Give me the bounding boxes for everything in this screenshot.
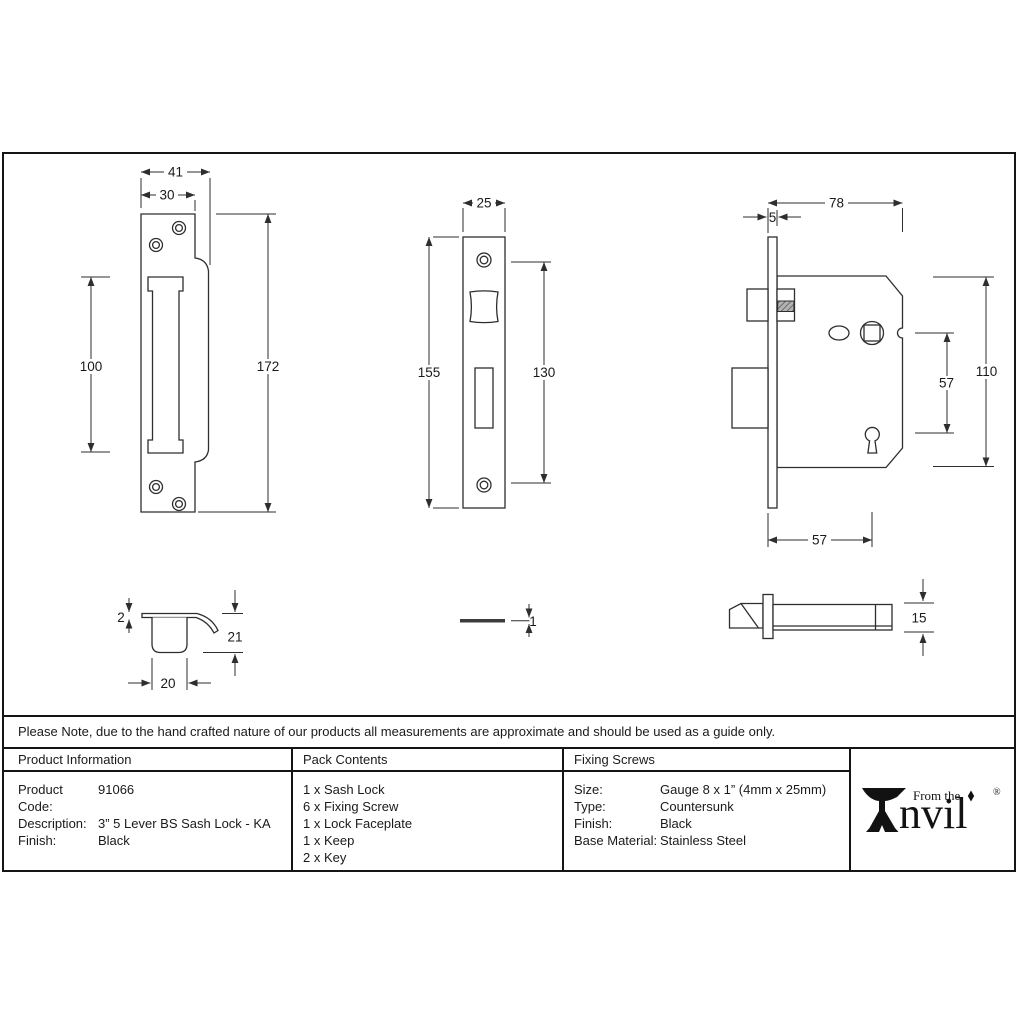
- dim-lock-spindle-to-keyhole: 57: [939, 376, 954, 391]
- screw-finish-label: Finish:: [574, 815, 660, 832]
- pack-item: 1 x Keep: [303, 832, 556, 849]
- latch-spring-hatch: [778, 301, 794, 312]
- dim-keep-width-outer: 41: [168, 165, 183, 180]
- latch-bolt: [747, 289, 768, 321]
- lock-side-drawing: 15: [730, 579, 935, 656]
- finish-label: Finish:: [18, 832, 98, 849]
- note-text: Please Note, due to the hand crafted nat…: [18, 724, 775, 739]
- table-row: Description: 3” 5 Lever BS Sash Lock - K…: [18, 815, 285, 832]
- table-row: Type: Countersunk: [574, 798, 843, 815]
- dim-faceplate-total-height: 155: [418, 365, 441, 380]
- table-row: Finish: Black: [574, 815, 843, 832]
- lock-case-outline: [777, 276, 903, 468]
- dim-keep-slot-height: 100: [80, 359, 103, 374]
- dim-keep-width-plate: 30: [159, 188, 174, 203]
- dim-faceplate-screw-span: 130: [533, 365, 556, 380]
- diamond-icon: [967, 791, 973, 802]
- keep-side-box: [152, 618, 187, 653]
- faceplate-outline: [463, 237, 505, 508]
- keep-side-drawing: 2 21 20: [117, 590, 243, 691]
- from-the-anvil-logo: From the nvil ®: [862, 783, 1004, 836]
- dim-keep-depth: 21: [227, 630, 242, 645]
- screw-material-value: Stainless Steel: [660, 832, 746, 849]
- product-information-body: Product Code: 91066 Description: 3” 5 Le…: [4, 772, 291, 870]
- screw-material-label: Base Material:: [574, 832, 660, 849]
- table-row: Size: Gauge 8 x 1” (4mm x 25mm): [574, 781, 843, 798]
- screw-size-value: Gauge 8 x 1” (4mm x 25mm): [660, 781, 826, 798]
- measurements-note: Please Note, due to the hand crafted nat…: [4, 715, 1014, 747]
- dim-keep-box-width: 20: [160, 676, 175, 691]
- dim-faceplate-thickness: 1: [529, 614, 537, 629]
- pack-item: 2 x Key: [303, 849, 556, 866]
- fixing-screws-column: Fixing Screws Size: Gauge 8 x 1” (4mm x …: [564, 749, 851, 870]
- registered-mark: ®: [993, 787, 1001, 798]
- faceplate-side-drawing: 1: [460, 604, 537, 637]
- dim-lock-backset: 57: [812, 533, 827, 548]
- screw-type-label: Type:: [574, 798, 660, 815]
- description-label: Description:: [18, 815, 98, 832]
- dim-lock-case-height: 110: [976, 364, 998, 379]
- screw-size-label: Size:: [574, 781, 660, 798]
- faceplate-side-bar: [460, 619, 505, 623]
- product-code-value: 91066: [98, 781, 134, 815]
- brand-name: nvil: [899, 789, 967, 836]
- product-code-label: Product Code:: [18, 781, 98, 815]
- product-information-column: Product Information Product Code: 91066 …: [4, 749, 293, 870]
- table-row: Base Material: Stainless Steel: [574, 832, 843, 849]
- product-spec-table: Product Information Product Code: 91066 …: [4, 747, 1014, 870]
- screw-finish-value: Black: [660, 815, 692, 832]
- dim-lock-case-depth: 15: [911, 611, 926, 626]
- table-row: Product Code: 91066: [18, 781, 285, 815]
- pack-contents-body: 1 x Sash Lock 6 x Fixing Screw 1 x Lock …: [293, 772, 562, 870]
- lock-side-faceplate: [763, 595, 773, 639]
- dim-keep-plate-thickness: 2: [117, 610, 125, 625]
- deadbolt: [732, 368, 768, 428]
- lock-body-drawing: 78 5 110 57: [732, 196, 1001, 548]
- fixing-screws-body: Size: Gauge 8 x 1” (4mm x 25mm) Type: Co…: [564, 772, 849, 870]
- dim-lock-faceplate-offset: 5: [769, 210, 777, 225]
- keep-plate-outline: [141, 214, 209, 512]
- finish-value: Black: [98, 832, 130, 849]
- faceplate-front-drawing: 25 155 130: [415, 196, 558, 509]
- lock-faceplate-bar: [768, 237, 777, 508]
- dim-faceplate-width: 25: [476, 196, 491, 211]
- pack-item: 1 x Sash Lock: [303, 781, 556, 798]
- pack-contents-header: Pack Contents: [293, 749, 562, 772]
- fixing-screws-header: Fixing Screws: [564, 749, 849, 772]
- pack-contents-column: Pack Contents 1 x Sash Lock 6 x Fixing S…: [293, 749, 564, 870]
- table-row: Finish: Black: [18, 832, 285, 849]
- pack-item: 6 x Fixing Screw: [303, 798, 556, 815]
- description-value: 3” 5 Lever BS Sash Lock - KA: [98, 815, 271, 832]
- screw-type-value: Countersunk: [660, 798, 734, 815]
- lock-side-latch: [730, 604, 764, 629]
- spec-sheet: 41 30 100 172: [2, 152, 1016, 872]
- keep-front-drawing: 41 30 100 172: [77, 165, 282, 513]
- brand-column: From the nvil ®: [851, 749, 1014, 870]
- technical-drawings: 41 30 100 172: [4, 154, 1014, 715]
- product-information-header: Product Information: [4, 749, 291, 772]
- dim-keep-total-height: 172: [257, 359, 280, 374]
- pack-item: 1 x Lock Faceplate: [303, 815, 556, 832]
- dim-lock-case-width: 78: [829, 196, 844, 211]
